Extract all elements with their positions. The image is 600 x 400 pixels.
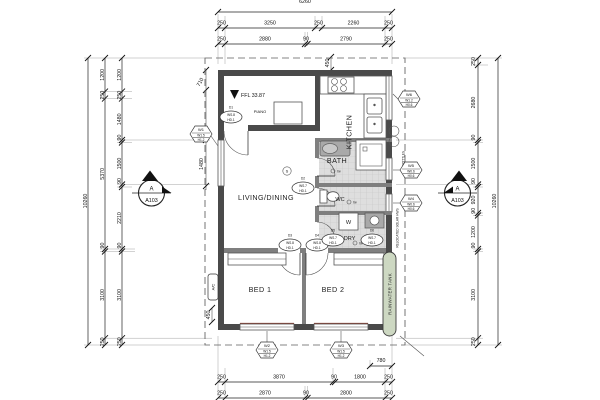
dim-label: 6260	[299, 0, 311, 5]
dim-label: 780	[377, 358, 386, 364]
solar-hws-label: RELOCATED SOLAR HWS	[395, 208, 399, 247]
room-label-bed1: BED 1	[249, 285, 272, 294]
dim-label: 90	[471, 243, 477, 249]
tag-line1: WS.8	[286, 241, 294, 245]
window-tag-w2: W2 W1.5 H1.2	[256, 342, 278, 358]
tag-id: D5	[331, 229, 335, 233]
ffl-label: FFL 33.87	[241, 93, 265, 99]
tag-line2: HD.1	[313, 246, 320, 250]
tag-height: H1.2	[198, 138, 205, 142]
tag-line2: HD.1	[227, 118, 234, 122]
tag-line1: WS.7	[329, 236, 337, 240]
floor-plan-drawing: 6260 250 3250 250 2260 250 250 2880 90 2…	[0, 0, 600, 400]
dim-label: 250	[217, 37, 226, 43]
dim-label: 250	[314, 21, 323, 27]
dim-label: 90	[303, 391, 309, 397]
dim-label: 2680	[471, 97, 477, 109]
tag-line2: HD.1	[286, 246, 293, 250]
dim-label: 90	[117, 135, 123, 141]
tag-line2: HD.1	[329, 241, 336, 245]
dim-label: 3870	[273, 375, 285, 381]
dim-label: 5370	[100, 168, 106, 180]
dim-label: 250	[100, 337, 106, 346]
dim-label: 250	[217, 391, 226, 397]
dim-label: 3100	[100, 289, 106, 301]
dim-label: 1480	[117, 113, 123, 125]
dim-label: 10260	[492, 194, 498, 209]
tag-id: W1	[198, 127, 205, 132]
dim-label: 90	[117, 178, 123, 184]
dim-label: 2870	[259, 391, 271, 397]
dim-label: 1800	[354, 375, 366, 381]
dim-label: 2260	[348, 21, 360, 27]
floor-plan-sheet: 6260 250 3250 250 2260 250 250 2880 90 2…	[0, 0, 600, 400]
room-label-wc: WC	[335, 197, 344, 203]
dim-label: 90	[331, 375, 337, 381]
dim-label: 2210	[117, 212, 123, 224]
tag-width: W1.2	[405, 99, 413, 103]
tag-width: W0.6	[407, 170, 415, 174]
dim-label: 1200	[117, 69, 123, 81]
tag-height: H0.6	[406, 103, 413, 107]
dim-label: 250	[117, 91, 123, 100]
window-tag-w3: W3 W1.5 H1.2	[330, 342, 352, 358]
tag-id: W4	[408, 196, 415, 201]
dim-label: 90	[471, 135, 477, 141]
dim-label: 3100	[117, 289, 123, 301]
tag-id: D2	[301, 177, 305, 181]
dim-label: 2790	[340, 37, 352, 43]
dim-label: 90	[303, 37, 309, 43]
tag-width: W1.5	[337, 350, 345, 354]
dim-label: 250	[217, 21, 226, 27]
dim-label: 1500	[117, 158, 123, 170]
room-label-living: LIVING/DINING	[238, 193, 294, 202]
dim-label: 920	[471, 196, 477, 205]
dim-label: 250	[471, 57, 477, 66]
dim-label: 250	[217, 375, 226, 381]
section-sheet: A103	[451, 198, 464, 204]
piano-outline	[274, 102, 302, 124]
window-tag-w5: W5 W0.6 H0.6	[400, 162, 422, 178]
tag-line1: WS.7	[368, 236, 376, 240]
section-letter: A	[455, 187, 459, 193]
tag-id: W5	[408, 163, 415, 168]
tag-height: H1.2	[264, 354, 271, 358]
tag-id: W3	[338, 343, 345, 348]
dim-label: 1200	[100, 69, 106, 81]
room-label-bed2: BED 2	[322, 285, 345, 294]
tag-id: D6	[370, 229, 374, 233]
basin	[323, 144, 338, 154]
tag-line2: HD.1	[299, 189, 306, 193]
tag-id: D4	[315, 234, 319, 238]
tag-height: H0.6	[408, 207, 415, 211]
dim-label: 250	[384, 37, 393, 43]
dim-label: 90	[117, 243, 123, 249]
dim-label: 2880	[259, 37, 271, 43]
section-sheet: A103	[145, 198, 158, 204]
dim-label: 250	[471, 337, 477, 346]
dim-label: 90	[471, 178, 477, 184]
window-tag-w6: W6 W1.2 H0.6	[398, 91, 420, 107]
ac-label: A/C	[211, 284, 216, 291]
window-tag-w1: W1 W1.5 H1.2	[190, 126, 212, 142]
dim-label: 1200	[471, 226, 477, 238]
tag-line1: WS.8	[313, 241, 321, 245]
section-letter: A	[149, 187, 153, 193]
window-tag-w4: W4 W0.6 H0.6	[400, 195, 422, 211]
rainwater-tank-label: RAINWATER TANK	[387, 273, 392, 315]
cistern	[320, 190, 327, 203]
room-label-kitchen: KITCHEN	[345, 115, 354, 149]
piano-label: PIANO	[254, 109, 266, 114]
dim-label: 250	[384, 21, 393, 27]
shower	[356, 140, 386, 170]
washer-label: W	[346, 220, 352, 226]
tag-id: W2	[264, 343, 271, 348]
tag-id: D1	[229, 106, 233, 110]
tag-line1: WS.8	[227, 113, 235, 117]
tag-width: W1.5	[263, 350, 271, 354]
dim-label: 1480	[199, 158, 205, 170]
dim-label: 250	[384, 391, 393, 397]
dim-label: 3250	[264, 21, 276, 27]
smoke-alarm-label: S	[286, 169, 289, 174]
tag-id: D3	[288, 234, 292, 238]
dim-label: 2800	[340, 391, 352, 397]
dim-label: 250	[117, 337, 123, 346]
tag-width: W0.6	[407, 203, 415, 207]
dim-label: 10260	[83, 194, 89, 209]
tag-height: H1.2	[338, 354, 345, 358]
tag-height: H0.6	[408, 174, 415, 178]
tag-line2: HD.1	[368, 241, 375, 245]
dim-label: 250	[100, 91, 106, 100]
room-label-bath: BATH	[327, 156, 347, 165]
tag-line1: WS.7	[299, 184, 307, 188]
dim-label: 450	[206, 311, 212, 320]
dim-label: 3100	[471, 289, 477, 301]
dim-label: 250	[384, 375, 393, 381]
dim-label: 450	[325, 59, 331, 68]
tag-id: W6	[406, 92, 413, 97]
tag-width: W1.5	[197, 134, 205, 138]
dim-label: 1500	[471, 158, 477, 170]
dim-label: 90	[100, 243, 106, 249]
dim-label: 90	[471, 208, 477, 214]
